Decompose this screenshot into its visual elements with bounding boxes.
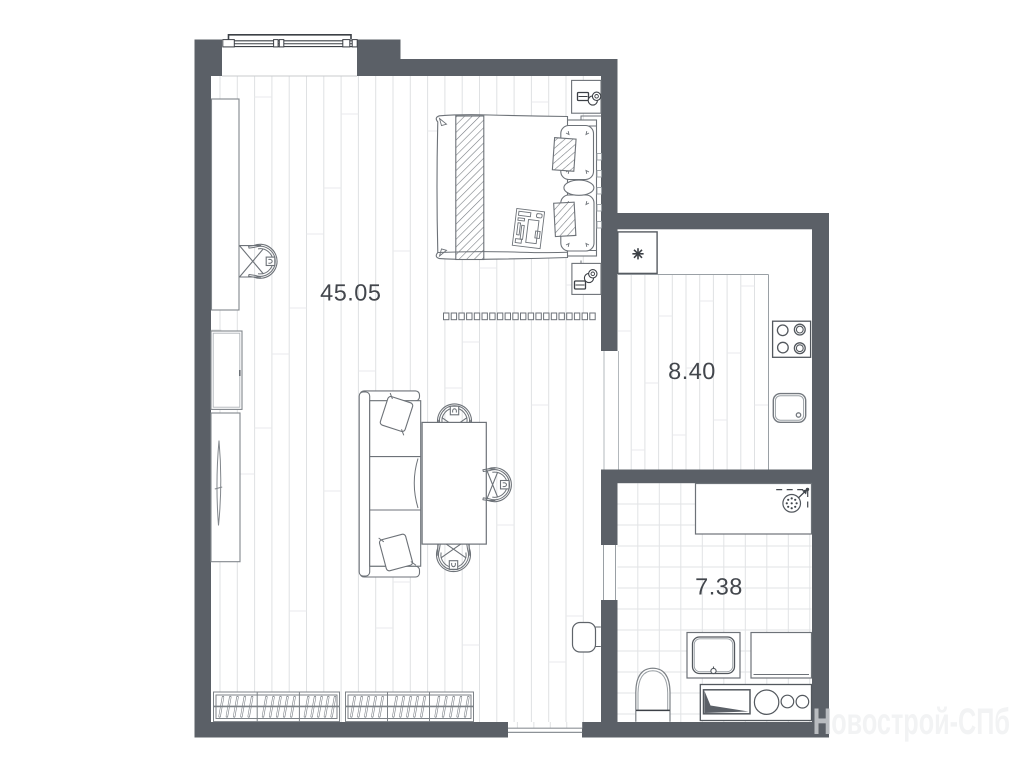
svg-text:8.40: 8.40 — [668, 358, 716, 384]
svg-text:Новострой-СПб: Новострой-СПб — [813, 701, 1010, 742]
svg-text:7.38: 7.38 — [695, 573, 743, 599]
svg-text:45.05: 45.05 — [320, 280, 381, 306]
